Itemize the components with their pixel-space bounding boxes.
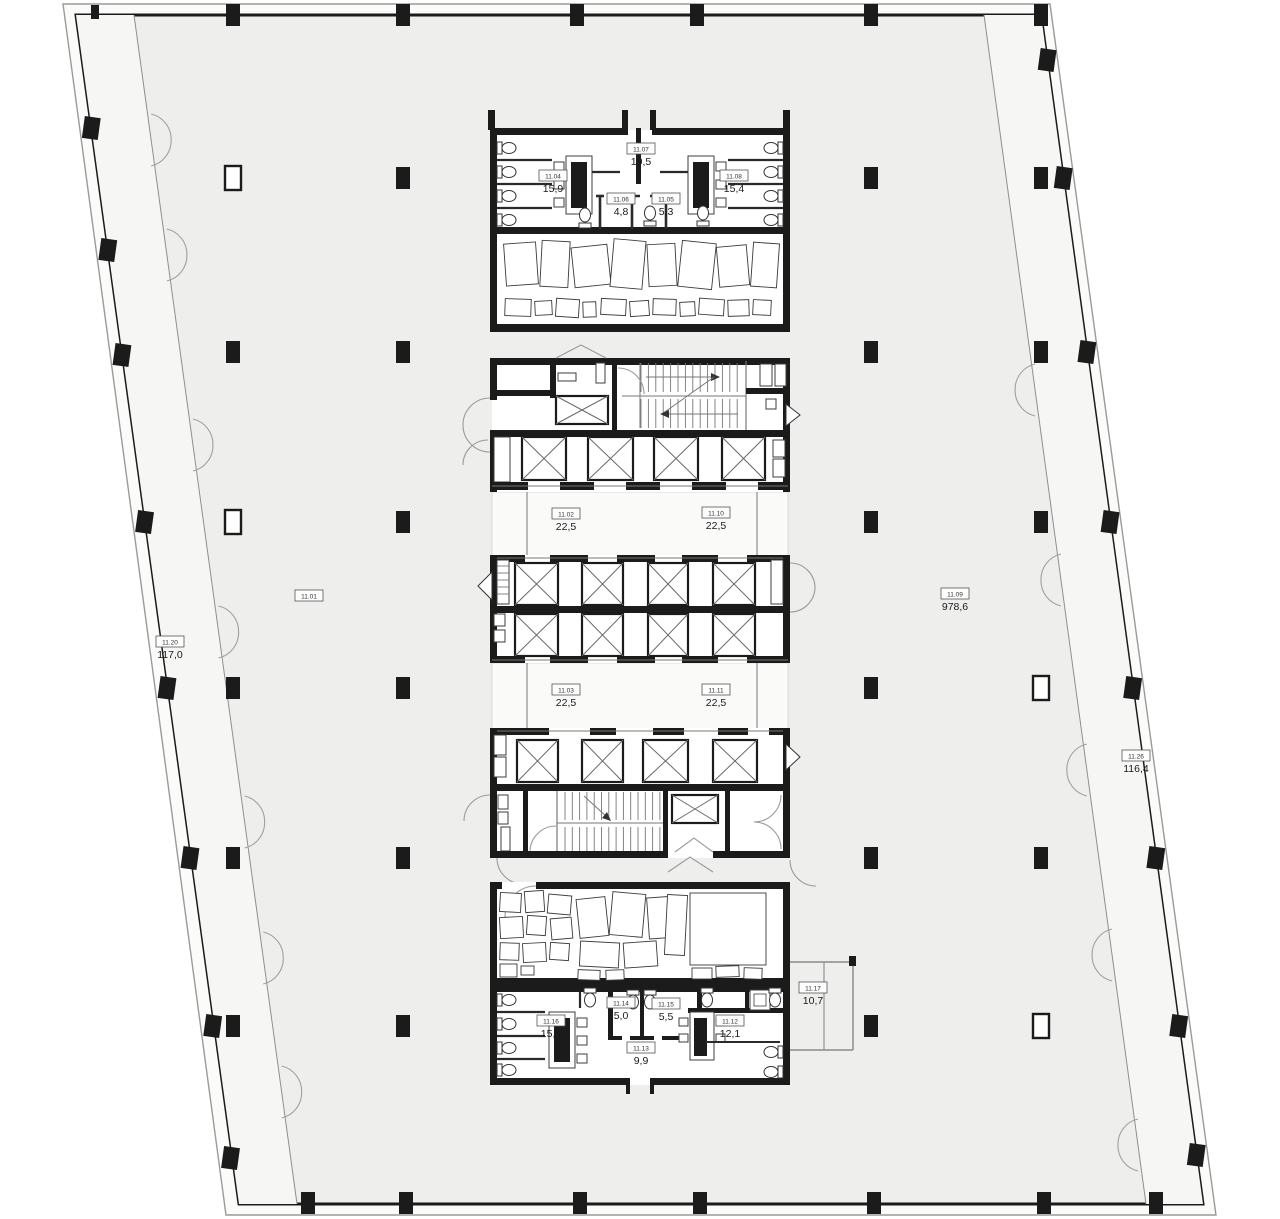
wall: [622, 110, 628, 130]
fixture: [494, 614, 505, 626]
facade-tick: [1034, 4, 1048, 26]
toilet-part: [764, 167, 778, 178]
facade-tick: [82, 116, 101, 140]
unit-area-text: 117,0: [157, 649, 183, 661]
column: [1034, 511, 1048, 533]
floor-plan-page: 11.0415,911.0710,511.0815,411.064,811.05…: [0, 0, 1280, 1219]
facade-tick: [1037, 1192, 1051, 1214]
facade-tick: [1077, 340, 1096, 364]
toilet-icon: [497, 994, 516, 1006]
column: [396, 847, 410, 869]
facade-tick: [396, 4, 410, 26]
toilet-part: [702, 993, 713, 1007]
wall: [652, 128, 790, 135]
toilet-part: [585, 993, 596, 1007]
column: [226, 341, 240, 363]
service-cell: [494, 437, 510, 482]
unit-id-text: 11.13: [633, 1046, 649, 1053]
furniture-item: [629, 300, 649, 316]
toilet-icon: [764, 166, 783, 178]
fixture: [596, 363, 605, 383]
wall: [745, 985, 749, 1010]
unit-id-text: 11.10: [708, 511, 724, 518]
wall: [488, 110, 495, 130]
unit-label: 11.1212,1: [716, 1015, 744, 1040]
facade-tick: [570, 4, 584, 26]
furniture-item: [610, 239, 646, 290]
wall: [490, 232, 497, 331]
unit-id-text: 11.16: [543, 1019, 559, 1026]
wall: [626, 1078, 630, 1094]
ladder-shaft: [497, 560, 509, 604]
column: [226, 847, 240, 869]
furniture-item: [578, 970, 600, 981]
facade-tick: [135, 510, 154, 534]
unit-label: 11.0415,9: [539, 170, 567, 195]
facade-tick: [1038, 48, 1057, 72]
column: [864, 1015, 878, 1037]
toilet-part: [497, 214, 502, 226]
wall: [608, 1036, 622, 1040]
unit-area-text: 15,4: [724, 183, 745, 195]
column-hollow: [1033, 1014, 1049, 1038]
toilet-part: [502, 1065, 516, 1076]
toilet-part: [778, 166, 783, 178]
toilet-part: [697, 221, 709, 226]
furniture-item: [500, 892, 522, 912]
unit-area-text: 22,5: [706, 520, 727, 532]
column-hollow: [1033, 676, 1049, 700]
furniture-item: [647, 243, 677, 286]
toilet-icon: [497, 190, 516, 202]
unit-label: 11.1122,5: [702, 684, 730, 709]
toilet-icon: [764, 1046, 783, 1058]
unit-id-text: 11.03: [558, 688, 574, 695]
toilet-part: [497, 994, 502, 1006]
wall: [523, 791, 528, 855]
furniture-item: [623, 941, 658, 968]
wall: [490, 851, 668, 858]
sink: [577, 1054, 587, 1063]
toilet-part: [502, 191, 516, 202]
wall: [650, 1078, 790, 1085]
toilet-part: [764, 191, 778, 202]
facade-tick: [91, 5, 99, 19]
plumbing-core: [571, 162, 587, 208]
wall: [630, 1036, 654, 1040]
furniture-item: [550, 917, 573, 940]
fixture: [773, 440, 785, 457]
sink: [679, 1034, 688, 1042]
wall: [490, 606, 790, 613]
furniture-item: [750, 242, 779, 288]
wall: [663, 791, 668, 855]
toilet-part: [778, 142, 783, 154]
sink: [716, 198, 726, 207]
wall: [640, 992, 644, 1040]
toilet-part: [764, 1047, 778, 1058]
furniture-item: [524, 890, 544, 912]
toilet-part: [497, 142, 502, 154]
toilet-part: [770, 993, 781, 1007]
facade-tick: [1187, 1143, 1206, 1167]
column: [396, 677, 410, 699]
unit-id-text: 11.12: [722, 1019, 738, 1026]
facade-tick: [1101, 510, 1120, 534]
unit-id-text: 11.26: [1128, 754, 1144, 761]
toilet-icon: [701, 988, 713, 1007]
furniture-item: [549, 942, 569, 960]
toilet-icon: [497, 166, 516, 178]
fixture: [494, 757, 506, 777]
column: [1034, 341, 1048, 363]
furniture-item: [753, 300, 772, 316]
toilet-part: [584, 988, 596, 993]
column: [1034, 847, 1048, 869]
column: [226, 677, 240, 699]
unit-label: 11.1710,7: [799, 982, 827, 1007]
toilet-part: [580, 208, 591, 222]
wall: [490, 985, 497, 1085]
unit-label: 11.0322,5: [552, 684, 580, 709]
unit-id-text: 11.02: [558, 512, 574, 519]
fixture: [494, 630, 505, 642]
toilet-icon: [584, 988, 596, 1007]
furniture-item: [680, 302, 696, 317]
toilet-icon: [764, 1066, 783, 1078]
fixture: [773, 459, 785, 477]
fixture: [498, 812, 508, 824]
wall: [746, 388, 790, 394]
facade-tick: [1169, 1014, 1188, 1038]
furniture-item: [678, 240, 717, 289]
wall: [783, 985, 790, 1085]
facade-tick: [1146, 846, 1165, 870]
toilet-part: [502, 995, 516, 1006]
furniture-item: [728, 300, 750, 317]
furniture-item: [653, 299, 677, 316]
facade-tick: [226, 4, 240, 26]
facade-tick: [693, 1192, 707, 1214]
facade-tick: [1054, 166, 1073, 190]
furniture-item: [523, 942, 547, 962]
furniture-item: [571, 244, 611, 288]
unit-id-text: 11.11: [708, 688, 724, 695]
column: [1034, 167, 1048, 189]
service-cell: [771, 560, 783, 604]
unit-id-text: 11.07: [633, 147, 649, 154]
wall: [713, 851, 790, 858]
unit-label: 11.26116,4: [1122, 750, 1150, 775]
wall: [783, 232, 790, 331]
unit-area-text: 5,3: [659, 206, 674, 218]
elevator-lobby: [492, 492, 788, 556]
facade-tick: [98, 238, 117, 262]
toilet-part: [764, 1067, 778, 1078]
unit-label: 11.01: [295, 590, 323, 601]
unit-area-text: 12,1: [720, 1028, 741, 1040]
sink: [577, 1036, 587, 1045]
unit-area-text: 10,5: [631, 156, 652, 168]
column: [864, 167, 878, 189]
furniture-item: [716, 245, 749, 287]
column: [396, 1015, 410, 1037]
toilet-part: [502, 1019, 516, 1030]
fixture: [558, 373, 576, 381]
wall: [490, 784, 790, 791]
wall: [490, 227, 790, 234]
fixture: [766, 399, 776, 409]
column-hollow: [225, 166, 241, 190]
fixture: [760, 364, 772, 386]
toilet-icon: [497, 142, 516, 154]
shower: [750, 990, 770, 1010]
column: [396, 341, 410, 363]
toilet-icon: [764, 190, 783, 202]
plumbing-core: [693, 162, 709, 208]
plumbing-core: [694, 1018, 707, 1056]
wall: [650, 110, 656, 130]
facade-tick: [301, 1192, 315, 1214]
unit-id-text: 11.06: [613, 197, 629, 204]
wall: [725, 791, 730, 858]
column: [864, 511, 878, 533]
toilet-part: [645, 206, 656, 220]
unit-area-text: 4,8: [614, 206, 629, 218]
unit-area-text: 978,6: [942, 601, 968, 613]
toilet-icon: [497, 214, 516, 226]
facade-tick: [690, 4, 704, 26]
furniture-item: [500, 964, 517, 977]
column: [396, 511, 410, 533]
furniture-item: [526, 915, 546, 935]
wall: [490, 128, 628, 135]
wall: [490, 882, 497, 985]
unit-area-text: 22,5: [706, 697, 727, 709]
unit-id-text: 11.15: [658, 1002, 674, 1009]
facade-tick: [867, 1192, 881, 1214]
toilet-part: [769, 988, 781, 993]
wall: [783, 952, 790, 988]
column: [226, 1015, 240, 1037]
toilet-icon: [697, 206, 709, 226]
unit-label: 11.09978,6: [941, 588, 969, 613]
unit-id-text: 11.20: [162, 640, 178, 647]
furniture-item: [521, 966, 534, 975]
sink: [554, 198, 564, 207]
unit-id-text: 11.04: [545, 174, 561, 181]
facade-tick: [203, 1014, 222, 1038]
furniture-item: [606, 970, 624, 981]
column-hollow: [225, 510, 241, 534]
fixture: [498, 795, 508, 809]
fixture: [775, 364, 786, 386]
sink: [577, 1018, 587, 1027]
toilet-part: [698, 206, 709, 220]
furniture-item: [698, 298, 724, 316]
unit-id-text: 11.08: [726, 174, 742, 181]
unit-id-text: 11.17: [805, 986, 821, 993]
facade-tick: [113, 343, 132, 367]
furniture-item: [583, 302, 597, 317]
furniture-item: [547, 894, 572, 915]
toilet-icon: [497, 1064, 516, 1076]
unit-label: 11.0710,5: [627, 143, 655, 168]
unit-area-text: 5,0: [614, 1010, 629, 1022]
furniture-item: [535, 301, 553, 316]
wall: [536, 882, 790, 889]
furniture-item: [504, 242, 539, 286]
toilet-icon: [579, 208, 591, 228]
toilet-part: [778, 190, 783, 202]
furniture-item: [609, 892, 646, 938]
unit-label: 11.0815,4: [720, 170, 748, 195]
toilet-part: [502, 167, 516, 178]
wall: [612, 358, 617, 436]
unit-id-text: 11.14: [613, 1001, 629, 1008]
column: [396, 167, 410, 189]
unit-id-text: 11.01: [301, 594, 317, 601]
unit-area-text: 5,5: [659, 1011, 674, 1023]
floor-plan-drawing: 11.0415,911.0710,511.0815,411.064,811.05…: [0, 0, 1280, 1219]
column: [864, 847, 878, 869]
toilet-part: [497, 1042, 502, 1054]
toilet-part: [502, 143, 516, 154]
toilet-icon: [644, 206, 656, 226]
unit-id-text: 11.05: [658, 197, 674, 204]
unit-area-text: 116,4: [1123, 763, 1149, 775]
facade-tick: [864, 4, 878, 26]
wall: [490, 1078, 630, 1085]
fixture: [501, 827, 510, 851]
toilet-part: [497, 1064, 502, 1076]
wall: [490, 390, 556, 396]
toilet-part: [627, 990, 639, 995]
toilet-part: [497, 1018, 502, 1030]
toilet-part: [764, 143, 778, 154]
furniture-item: [500, 943, 520, 961]
toilet-part: [701, 988, 713, 993]
unit-label: 11.0222,5: [552, 508, 580, 533]
sink: [679, 1018, 688, 1026]
facade-tick: [221, 1146, 240, 1170]
furniture-item: [690, 893, 766, 965]
toilet-part: [579, 223, 591, 228]
toilet-icon: [497, 1018, 516, 1030]
facade-tick: [158, 676, 177, 700]
toilet-icon: [497, 1042, 516, 1054]
furniture-item: [540, 240, 570, 287]
unit-area-text: 22,5: [556, 697, 577, 709]
unit-area-text: 9,9: [634, 1055, 649, 1067]
toilet-part: [778, 1046, 783, 1058]
furniture-item: [744, 968, 762, 980]
unit-label: 11.1615,9: [537, 1015, 565, 1040]
toilet-icon: [764, 214, 783, 226]
toilet-part: [497, 190, 502, 202]
fixture: [494, 735, 506, 755]
facade-tick: [1149, 1192, 1163, 1214]
unit-label: 11.1022,5: [702, 507, 730, 532]
toilet-part: [764, 215, 778, 226]
toilet-part: [778, 1066, 783, 1078]
furniture-item: [505, 299, 532, 317]
unit-area-text: 22,5: [556, 521, 577, 533]
furniture-item: [601, 298, 627, 315]
wall: [490, 128, 497, 232]
column: [864, 677, 878, 699]
wall: [783, 110, 790, 130]
furniture-item: [555, 298, 579, 318]
unit-label: 11.20117,0: [156, 636, 184, 661]
toilet-part: [502, 215, 516, 226]
furniture-item: [576, 897, 609, 939]
furniture-item: [579, 941, 619, 968]
furniture-item: [716, 966, 739, 978]
wall: [650, 1078, 654, 1094]
facade-tick: [1123, 676, 1142, 700]
toilet-part: [644, 990, 656, 995]
furniture-item: [664, 895, 687, 956]
facade-tick: [573, 1192, 587, 1214]
toilet-icon: [769, 988, 781, 1007]
column: [864, 341, 878, 363]
unit-area-text: 15,9: [541, 1028, 562, 1040]
unit-id-text: 11.09: [947, 592, 963, 599]
furniture-item: [692, 968, 712, 979]
facade-tick: [399, 1192, 413, 1214]
wall: [783, 128, 790, 232]
wall: [849, 956, 856, 966]
toilet-part: [778, 214, 783, 226]
toilet-icon: [764, 142, 783, 154]
elevator-lobby: [492, 663, 788, 729]
unit-area-text: 15,9: [543, 183, 564, 195]
wall: [490, 324, 790, 332]
toilet-part: [502, 1043, 516, 1054]
furniture-item: [499, 916, 523, 938]
toilet-part: [644, 221, 656, 226]
facade-tick: [181, 846, 200, 870]
unit-area-text: 10,7: [803, 995, 824, 1007]
toilet-part: [497, 166, 502, 178]
